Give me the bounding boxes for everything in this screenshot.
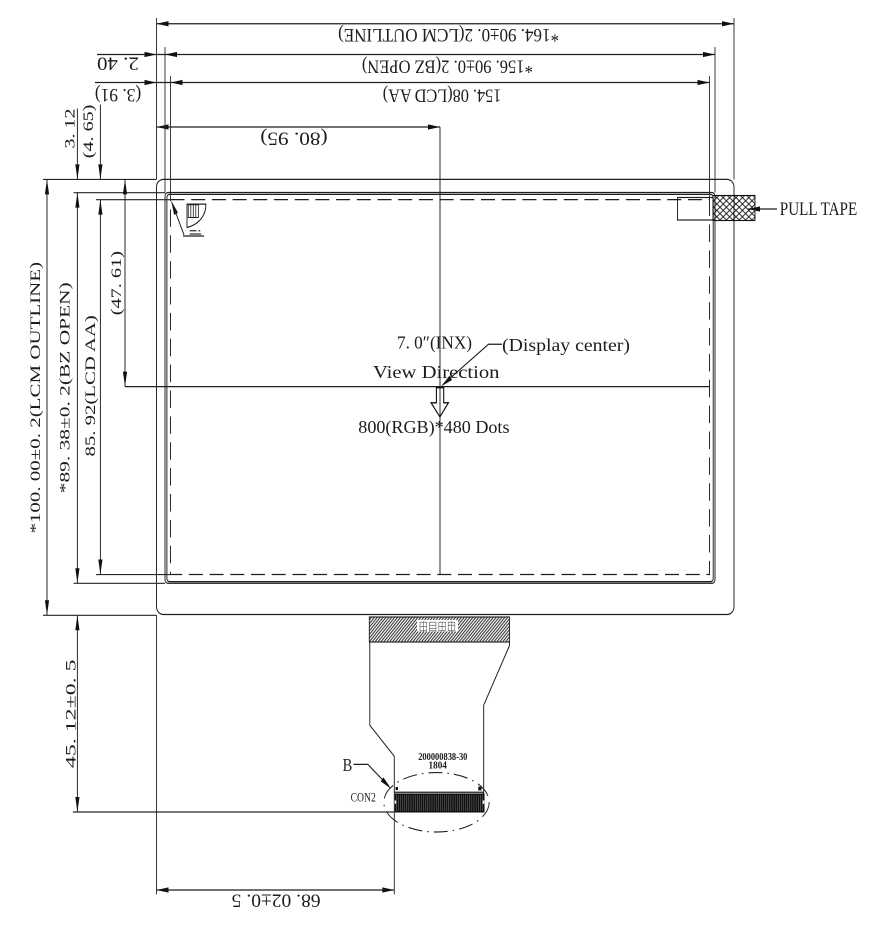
svg-text:*89. 38±0. 2(BZ OPEN): *89. 38±0. 2(BZ OPEN) bbox=[56, 282, 73, 493]
svg-text:154. 08(LCD AA): 154. 08(LCD AA) bbox=[383, 85, 502, 106]
svg-text:(Display center): (Display center) bbox=[502, 337, 630, 356]
svg-text:View Direction: View Direction bbox=[373, 364, 500, 383]
svg-text:1804: 1804 bbox=[429, 761, 448, 772]
svg-text:68. 02±0. 5: 68. 02±0. 5 bbox=[232, 890, 321, 911]
svg-text:*164. 90±0. 2(LCM OUTLINE): *164. 90±0. 2(LCM OUTLINE) bbox=[338, 25, 559, 46]
svg-text:CON2: CON2 bbox=[351, 792, 376, 805]
svg-text:(4. 65): (4. 65) bbox=[80, 105, 97, 159]
svg-text:45. 12±0. 5: 45. 12±0. 5 bbox=[62, 659, 79, 768]
svg-text:800(RGB)*480 Dots: 800(RGB)*480 Dots bbox=[358, 419, 509, 438]
svg-text:(3. 91): (3. 91) bbox=[95, 85, 141, 106]
svg-text:*100. 00±0. 2(LCM OUTLINE): *100. 00±0. 2(LCM OUTLINE) bbox=[27, 262, 44, 534]
svg-text:B: B bbox=[343, 754, 353, 775]
svg-text:85. 92(LCD AA): 85. 92(LCD AA) bbox=[82, 315, 99, 456]
svg-text:3. 12: 3. 12 bbox=[61, 109, 78, 149]
svg-text:7. 0″(INX): 7. 0″(INX) bbox=[397, 334, 472, 353]
svg-text:(47. 61): (47. 61) bbox=[108, 251, 125, 315]
svg-text:PULL TAPE: PULL TAPE bbox=[780, 198, 857, 219]
svg-text:*156. 90±0. 2(BZ OPEN): *156. 90±0. 2(BZ OPEN) bbox=[362, 56, 533, 77]
svg-text:(80. 95): (80. 95) bbox=[260, 128, 327, 149]
svg-text:2. 40: 2. 40 bbox=[97, 53, 139, 74]
